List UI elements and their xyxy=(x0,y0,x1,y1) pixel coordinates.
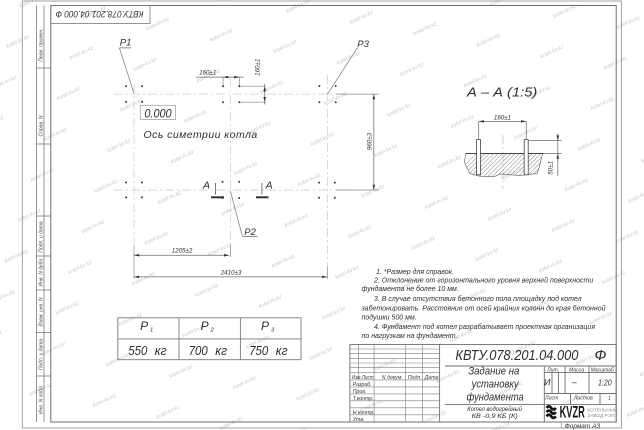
svg-text:P1: P1 xyxy=(120,37,132,48)
svg-text:Инв. N подл.: Инв. N подл. xyxy=(39,385,45,414)
svg-text:1: 1 xyxy=(150,328,153,334)
svg-text:kotel-kv.kz: kotel-kv.kz xyxy=(474,247,500,263)
svg-text:2: 2 xyxy=(210,328,215,334)
svg-text:kotel-kv.kz: kotel-kv.kz xyxy=(487,206,513,222)
svg-text:550: 550 xyxy=(128,343,148,358)
svg-text:kotel-kv.kz: kotel-kv.kz xyxy=(170,149,196,165)
svg-text:kotel-kv.kz: kotel-kv.kz xyxy=(373,143,399,159)
svg-text:50±1: 50±1 xyxy=(548,161,555,175)
svg-text:kotel-kv.kz: kotel-kv.kz xyxy=(323,91,349,107)
svg-text:kotel-kv.kz: kotel-kv.kz xyxy=(144,231,170,247)
svg-text:Формат А3: Формат А3 xyxy=(565,423,601,430)
svg-text:kotel-kv.kz: kotel-kv.kz xyxy=(41,341,67,357)
svg-text:kotel-kv.kz: kotel-kv.kz xyxy=(564,177,590,193)
svg-text:Подп. и дата: Подп. и дата xyxy=(39,339,45,371)
svg-text:160±1: 160±1 xyxy=(199,70,216,77)
svg-text:kotel-kv.kz: kotel-kv.kz xyxy=(271,253,297,269)
svg-text:kotel-kv.kz: kotel-kv.kz xyxy=(92,393,118,409)
svg-text:kotel-kv.kz: kotel-kv.kz xyxy=(551,218,577,234)
svg-text:700: 700 xyxy=(189,343,209,358)
svg-text:2. Отклонение от горизонтально: 2. Отклонение от горизонтального уровня … xyxy=(373,276,593,284)
svg-text:kotel-kv.kz: kotel-kv.kz xyxy=(590,96,616,112)
svg-text:kotel-kv.kz: kotel-kv.kz xyxy=(4,248,30,264)
svg-text:Изм.Лист: Изм.Лист xyxy=(352,375,374,381)
svg-text:Задание на: Задание на xyxy=(468,366,519,378)
svg-text:Ось симетрии котла: Ось симетрии котла xyxy=(144,129,258,141)
svg-text:kotel-kv.kz: kotel-kv.kz xyxy=(616,15,642,31)
svg-text:ЗАВОД РЭП: ЗАВОД РЭП xyxy=(587,413,615,419)
svg-text:kotel-kv.kz: kotel-kv.kz xyxy=(639,362,644,378)
svg-text:kotel-kv.kz: kotel-kv.kz xyxy=(577,137,603,153)
svg-text:kotel-kv.kz: kotel-kv.kz xyxy=(539,44,565,60)
svg-text:kotel-kv.kz: kotel-kv.kz xyxy=(310,132,336,148)
svg-text:Н.контр.: Н.контр. xyxy=(353,410,375,416)
svg-text:Разраб.: Разраб. xyxy=(353,382,372,388)
svg-text:кг: кг xyxy=(215,343,227,358)
svg-text:kotel-kv.kz: kotel-kv.kz xyxy=(347,224,373,240)
svg-text:kotel-kv.kz: kotel-kv.kz xyxy=(157,190,183,206)
svg-text:Пров.: Пров. xyxy=(353,389,367,395)
svg-text:kotel-kv.kz: kotel-kv.kz xyxy=(412,21,438,37)
svg-text:kotel-kv.kz: kotel-kv.kz xyxy=(222,0,248,3)
svg-text:kotel-kv.kz: kotel-kv.kz xyxy=(80,219,106,235)
svg-text:KVZR: KVZR xyxy=(560,404,585,422)
svg-text:kotel-kv.kz: kotel-kv.kz xyxy=(272,39,298,55)
svg-text:установку: установку xyxy=(471,379,519,391)
svg-text:Подп.: Подп. xyxy=(408,375,422,381)
svg-text:kotel-kv.kz: kotel-kv.kz xyxy=(538,258,564,274)
svg-text:3. В случае отсутствия бетонно: 3. В случае отсутствия бетонного пола пл… xyxy=(374,295,582,303)
svg-text:kotel-kv.kz: kotel-kv.kz xyxy=(30,167,56,183)
svg-text:Подп. и дата: Подп. и дата xyxy=(39,221,45,253)
svg-text:КВ -0,9 КБ (К): КВ -0,9 КБ (К) xyxy=(472,413,518,420)
svg-text:kotel-kv.kz: kotel-kv.kz xyxy=(372,357,398,373)
svg-text:А: А xyxy=(265,179,273,191)
svg-text:kotel-kv.kz: kotel-kv.kz xyxy=(0,289,16,305)
svg-text:kotel-kv.kz: kotel-kv.kz xyxy=(336,50,362,66)
svg-text:КВТУ.078.201.04.000: КВТУ.078.201.04.000 xyxy=(455,347,579,364)
svg-text:А: А xyxy=(202,179,210,191)
svg-text:Инв. N дубл.: Инв. N дубл. xyxy=(39,258,45,287)
svg-text:3: 3 xyxy=(271,328,275,334)
svg-text:–: – xyxy=(571,377,578,387)
svg-text:по нагрузкам на фундамент.: по нагрузкам на фундамент. xyxy=(362,332,458,340)
svg-text:kotel-kv.kz: kotel-kv.kz xyxy=(5,34,31,50)
svg-text:kotel-kv.kz: kotel-kv.kz xyxy=(386,102,412,118)
svg-text:Р: Р xyxy=(201,319,209,333)
svg-text:1:20: 1:20 xyxy=(598,378,612,388)
svg-text:фундамента: фундамента xyxy=(467,392,524,404)
svg-text:kotel-kv.kz: kotel-kv.kz xyxy=(321,305,347,321)
svg-text:Справ. N: Справ. N xyxy=(39,115,45,136)
svg-text:kotel-kv.kz: kotel-kv.kz xyxy=(349,10,375,26)
svg-text:kotel-kv.kz: kotel-kv.kz xyxy=(93,179,119,195)
svg-text:Котел водогрейный: Котел водогрейный xyxy=(467,405,522,413)
svg-text:kotel-kv.kz: kotel-kv.kz xyxy=(67,260,93,276)
svg-text:кг: кг xyxy=(276,343,288,358)
svg-text:kotel-kv.kz: kotel-kv.kz xyxy=(626,403,644,419)
svg-text:kotel-kv.kz: kotel-kv.kz xyxy=(627,189,644,205)
svg-text:kotel-kv.kz: kotel-kv.kz xyxy=(640,148,644,164)
svg-text:kotel-kv.kz: kotel-kv.kz xyxy=(194,283,220,299)
svg-text:160±1: 160±1 xyxy=(255,59,262,76)
svg-text:Лист: Лист xyxy=(544,396,559,402)
svg-text:kotel-kv.kz: kotel-kv.kz xyxy=(284,213,310,229)
svg-text:0.000: 0.000 xyxy=(144,107,171,121)
svg-text:kotel-kv.kz: kotel-kv.kz xyxy=(233,161,259,177)
svg-text:kotel-kv.kz: kotel-kv.kz xyxy=(0,330,3,346)
svg-text:kotel-kv.kz: kotel-kv.kz xyxy=(155,404,181,420)
svg-text:N докум.: N докум. xyxy=(382,375,403,381)
svg-text:kotel-kv.kz: kotel-kv.kz xyxy=(411,236,437,252)
svg-text:kotel-kv.kz: kotel-kv.kz xyxy=(106,138,132,154)
svg-text:kotel-kv.kz: kotel-kv.kz xyxy=(132,57,158,73)
svg-text:kotel-kv.kz: kotel-kv.kz xyxy=(295,387,321,403)
svg-text:Дата: Дата xyxy=(424,375,439,381)
svg-text:Масса: Масса xyxy=(569,367,584,373)
svg-text:Т.контр.: Т.контр. xyxy=(353,396,374,402)
svg-text:kotel-kv.kz: kotel-kv.kz xyxy=(476,33,502,49)
svg-text:kotel-kv.kz: kotel-kv.kz xyxy=(308,346,334,362)
svg-text:kotel-kv.kz: kotel-kv.kz xyxy=(69,45,95,61)
svg-text:Взам. инв. N: Взам. инв. N xyxy=(39,297,45,327)
svg-text:А – А (1:5): А – А (1:5) xyxy=(466,84,537,99)
svg-text:2410±3: 2410±3 xyxy=(220,269,242,276)
svg-text:kotel-kv.kz: kotel-kv.kz xyxy=(183,109,209,125)
svg-text:kotel-kv.kz: kotel-kv.kz xyxy=(334,265,360,281)
svg-text:kotel-kv.kz: kotel-kv.kz xyxy=(0,75,18,91)
svg-text:фундамента не более 10 мм.: фундамента не более 10 мм. xyxy=(362,285,459,293)
svg-text:kotel-kv.kz: kotel-kv.kz xyxy=(258,294,284,310)
svg-text:kotel-kv.kz: kotel-kv.kz xyxy=(56,86,82,102)
svg-text:kotel-kv.kz: kotel-kv.kz xyxy=(145,16,171,32)
svg-text:Лит.: Лит. xyxy=(546,367,559,373)
svg-text:kotel-kv.kz: kotel-kv.kz xyxy=(131,271,157,287)
svg-text:kotel-kv.kz: kotel-kv.kz xyxy=(54,300,80,316)
svg-text:Р: Р xyxy=(261,319,269,333)
svg-text:kotel-kv.kz: kotel-kv.kz xyxy=(220,201,246,217)
svg-text:kotel-kv.kz: kotel-kv.kz xyxy=(424,195,450,211)
svg-text:kotel-kv.kz: kotel-kv.kz xyxy=(207,242,233,258)
svg-text:kotel-kv.kz: kotel-kv.kz xyxy=(601,270,627,286)
svg-text:подушки 500 мм.: подушки 500 мм. xyxy=(362,314,417,322)
svg-text:kotel-kv.kz: kotel-kv.kz xyxy=(232,375,258,391)
svg-text:1205±2: 1205±2 xyxy=(172,248,193,255)
svg-text:Перв. примен.: Перв. примен. xyxy=(39,28,45,61)
svg-text:забетонировать. Расстояние от: забетонировать. Расстояние от осей крайн… xyxy=(361,305,606,313)
svg-text:kotel-kv.kz: kotel-kv.kz xyxy=(422,409,448,425)
svg-text:кг: кг xyxy=(155,343,167,358)
svg-text:160±1: 160±1 xyxy=(494,114,511,121)
svg-text:Ф: Ф xyxy=(595,347,607,364)
svg-text:kotel-kv.kz: kotel-kv.kz xyxy=(168,364,194,380)
svg-text:P3: P3 xyxy=(357,39,369,50)
svg-text:4. Фундамент под котел разраба: 4. Фундамент под котел разрабатывает про… xyxy=(374,323,595,331)
svg-text:kotel-kv.kz: kotel-kv.kz xyxy=(614,229,640,245)
svg-text:kotel-kv.kz: kotel-kv.kz xyxy=(259,80,285,96)
svg-text:kotel-kv.kz: kotel-kv.kz xyxy=(297,172,323,188)
svg-text:Масштаб: Масштаб xyxy=(591,367,615,373)
svg-text:И: И xyxy=(544,378,551,388)
svg-text:750: 750 xyxy=(249,343,269,358)
svg-text:Р: Р xyxy=(140,319,148,333)
svg-text:1: 1 xyxy=(608,396,611,402)
svg-text:960±3: 960±3 xyxy=(367,132,374,150)
svg-text:1. *Размер для справок.: 1. *Размер для справок. xyxy=(376,268,454,276)
svg-text:Утв.: Утв. xyxy=(353,417,365,423)
svg-text:kotel-kv.kz: kotel-kv.kz xyxy=(399,62,425,78)
svg-text:Листов: Листов xyxy=(573,396,593,402)
svg-text:kotel-kv.kz: kotel-kv.kz xyxy=(209,28,235,44)
svg-text:kotel-kv.kz: kotel-kv.kz xyxy=(450,114,476,130)
svg-text:КВТУ.078.201.04.000 Ф: КВТУ.078.201.04.000 Ф xyxy=(55,8,143,19)
svg-text:kotel-kv.kz: kotel-kv.kz xyxy=(285,0,311,15)
svg-text:kotel-kv.kz: kotel-kv.kz xyxy=(0,115,5,131)
svg-text:kotel-kv.kz: kotel-kv.kz xyxy=(43,127,69,143)
svg-text:КОТЕЛЬНЫЙ: КОТЕЛЬНЫЙ xyxy=(587,406,618,414)
svg-text:kotel-kv.kz: kotel-kv.kz xyxy=(437,154,463,170)
